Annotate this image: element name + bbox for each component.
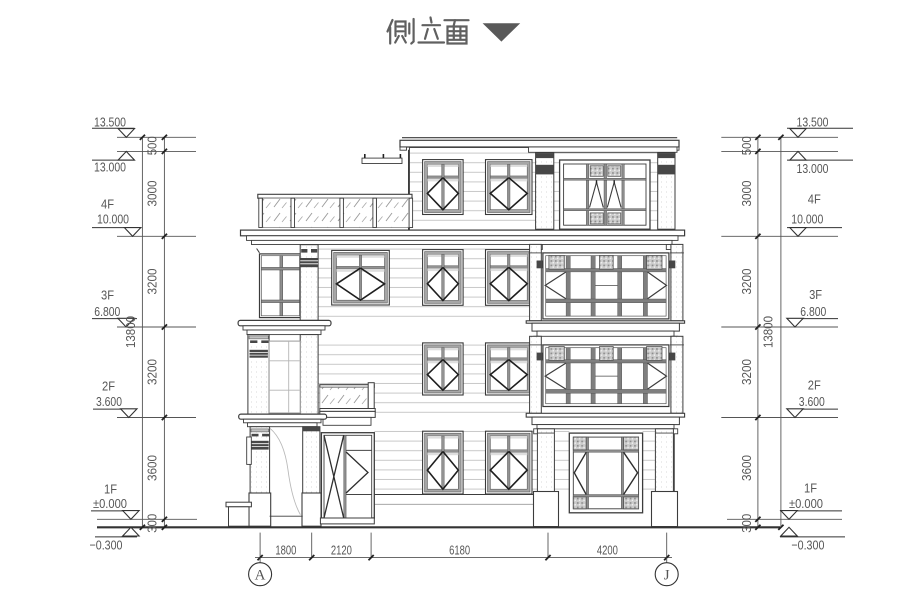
svg-text:±0.000: ±0.000 — [789, 496, 823, 511]
svg-text:6.800: 6.800 — [94, 304, 120, 319]
svg-text:±0.000: ±0.000 — [93, 496, 127, 511]
svg-text:3F: 3F — [101, 288, 114, 303]
svg-text:−0.300: −0.300 — [90, 538, 123, 553]
svg-text:13800: 13800 — [123, 316, 138, 348]
svg-text:300: 300 — [739, 514, 754, 533]
svg-text:3200: 3200 — [145, 269, 160, 295]
svg-text:3200: 3200 — [739, 269, 754, 295]
svg-text:2F: 2F — [102, 379, 115, 394]
svg-text:3200: 3200 — [145, 359, 160, 385]
svg-text:3.600: 3.600 — [96, 394, 122, 409]
svg-text:13.000: 13.000 — [94, 160, 126, 175]
svg-text:2120: 2120 — [331, 542, 352, 557]
svg-text:3000: 3000 — [145, 181, 160, 207]
svg-text:1F: 1F — [804, 481, 817, 496]
svg-text:6.800: 6.800 — [800, 304, 826, 319]
svg-text:1F: 1F — [104, 482, 117, 497]
svg-text:13800: 13800 — [761, 316, 776, 348]
svg-text:300: 300 — [145, 514, 160, 533]
svg-text:3F: 3F — [809, 287, 822, 302]
svg-text:500: 500 — [145, 136, 160, 155]
svg-text:3200: 3200 — [739, 359, 754, 385]
svg-text:13.500: 13.500 — [797, 114, 829, 129]
svg-text:A: A — [255, 567, 266, 583]
svg-text:10.000: 10.000 — [97, 211, 129, 226]
svg-text:4200: 4200 — [597, 542, 618, 557]
svg-text:3600: 3600 — [145, 455, 160, 481]
svg-text:2F: 2F — [808, 378, 821, 393]
svg-text:1800: 1800 — [275, 542, 296, 557]
svg-text:500: 500 — [739, 136, 754, 155]
svg-text:−0.300: −0.300 — [791, 538, 824, 553]
svg-text:10.000: 10.000 — [791, 211, 823, 226]
svg-text:3600: 3600 — [739, 455, 754, 481]
svg-text:13.500: 13.500 — [94, 114, 126, 129]
svg-text:3000: 3000 — [739, 181, 754, 207]
svg-text:4F: 4F — [808, 191, 821, 206]
svg-text:13.000: 13.000 — [797, 161, 829, 176]
svg-text:4F: 4F — [101, 197, 114, 212]
svg-text:3.600: 3.600 — [799, 394, 825, 409]
svg-text:J: J — [664, 567, 670, 583]
svg-text:6180: 6180 — [449, 542, 470, 557]
